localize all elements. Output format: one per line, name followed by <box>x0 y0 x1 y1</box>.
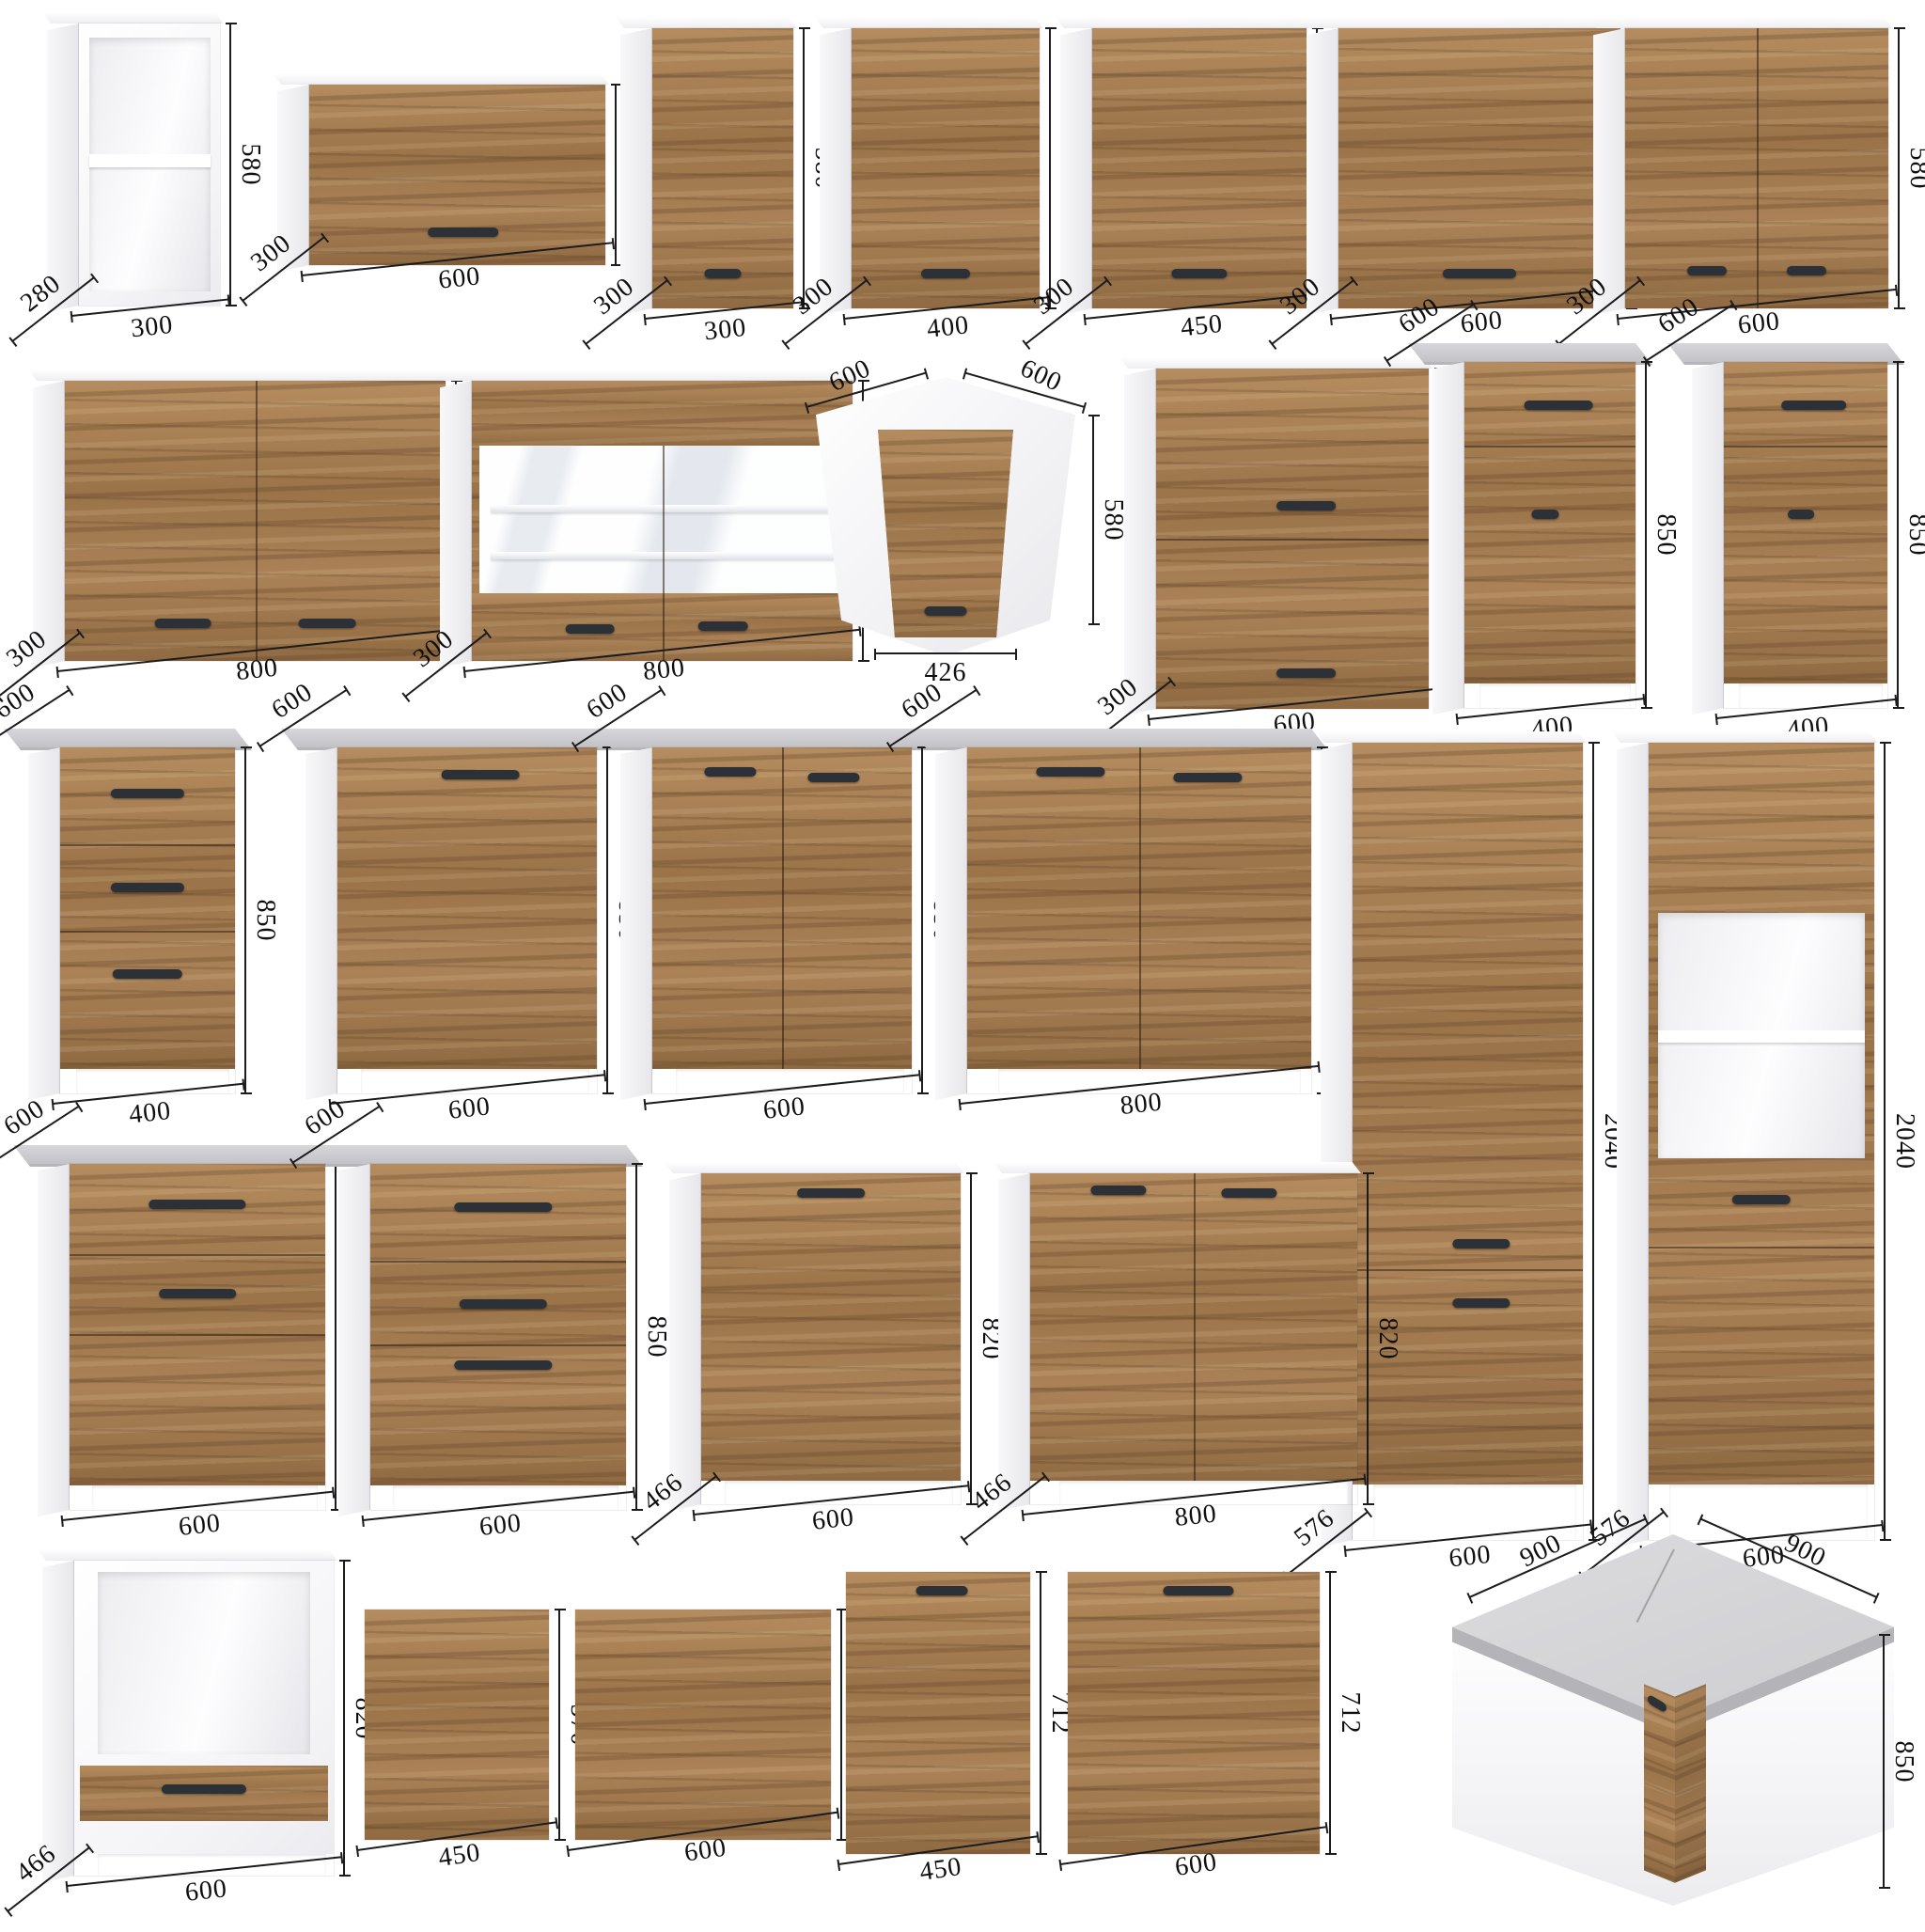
height-dimension-line <box>840 1610 842 1840</box>
cabinet-front <box>70 1164 325 1510</box>
front-skin <box>337 747 597 1069</box>
cabinet-side-panel <box>305 747 337 1100</box>
door-gap-horizontal <box>1464 446 1635 448</box>
front-width-dimension-line <box>875 652 1016 654</box>
door-handle <box>1525 401 1593 410</box>
door-gap-horizontal <box>1724 446 1887 448</box>
cabinet-front <box>575 1610 831 1840</box>
height-dimension-line <box>921 747 923 1093</box>
cabinet-item-r3c3: 850600600 <box>620 747 955 1150</box>
height-dimension-line <box>970 1173 972 1504</box>
cabinet-front <box>472 381 853 661</box>
door-handle <box>1164 1586 1234 1595</box>
cabinet-item-r5c1: 820600466 <box>42 1561 377 1932</box>
door-handle <box>925 606 967 616</box>
cabinet-front <box>60 747 235 1093</box>
door-handle <box>1453 1298 1510 1308</box>
front-skin <box>65 381 446 661</box>
cabinet-side-panel <box>38 1164 70 1516</box>
top-left-width-label: 900 <box>1515 1529 1566 1574</box>
door-handle <box>455 1360 552 1370</box>
door-handle <box>1171 269 1227 278</box>
height-dimension-line <box>343 1561 345 1876</box>
height-dimension-line <box>606 747 608 1093</box>
width-label: 450 <box>1180 309 1225 344</box>
height-dimension-line <box>803 28 805 308</box>
front-skin <box>1092 28 1307 308</box>
door-handle <box>1648 1693 1667 1712</box>
height-label: 580 <box>1903 148 1925 190</box>
door-handle <box>299 619 356 628</box>
width-label: 400 <box>128 1096 173 1131</box>
cabinet-side-panel <box>338 1164 370 1516</box>
front-skin <box>1724 362 1887 683</box>
depth-label: 600 <box>897 677 948 725</box>
cabinet-item-r2c6: 850400600 <box>1692 362 1925 764</box>
height-dimension-line <box>1592 743 1594 1540</box>
height-dimension-line <box>1645 362 1647 708</box>
door-handle <box>149 1200 245 1209</box>
cabinet-top-edge <box>1612 731 1878 743</box>
inner-corner-door-left <box>1644 1684 1675 1882</box>
width-label: 600 <box>446 1092 492 1126</box>
door-handle <box>698 621 748 631</box>
width-label: 600 <box>477 1508 523 1543</box>
door-gap-horizontal <box>1649 1247 1874 1249</box>
cabinet-item-r2c5: 850400600 <box>1432 362 1679 764</box>
door-handle <box>113 969 182 979</box>
height-label: 712 <box>1335 1692 1365 1735</box>
top-right-width-label: 900 <box>1779 1529 1830 1574</box>
front-skin <box>1068 1572 1320 1854</box>
width-label: 300 <box>130 310 175 345</box>
door-handle <box>455 1202 552 1212</box>
door-gap-vertical <box>1194 1173 1196 1481</box>
cabinet-top-edge <box>1056 17 1310 28</box>
width-label: 600 <box>761 1092 806 1126</box>
height-dimension-line <box>635 1164 637 1510</box>
cabinet-side-panel <box>620 747 652 1100</box>
front-skin <box>652 747 912 1069</box>
width-label: 600 <box>1173 1847 1219 1883</box>
cabinet-item-r5c4: 712450 <box>846 1572 1105 1910</box>
cabinet-top-edge <box>1589 17 1892 28</box>
width-label: 600 <box>810 1502 855 1537</box>
cabinet-front <box>1724 362 1887 708</box>
height-dimension-line <box>229 24 231 306</box>
cabinet-item-r5c6: 900900850 <box>1452 1534 1894 1906</box>
door-gap-horizontal <box>60 931 235 933</box>
height-label: 2040 <box>1889 1113 1919 1170</box>
cabinet-front <box>65 381 446 661</box>
height-dimension-line <box>1883 1635 1885 1888</box>
cabinet-front <box>74 1561 334 1876</box>
width-label: 800 <box>1173 1499 1218 1533</box>
oven-cavity <box>98 1572 310 1753</box>
door-handle <box>705 269 742 278</box>
door-handle <box>1276 668 1337 678</box>
cabinet-item-r3c4: 850800600 <box>935 747 1354 1150</box>
width-dimension: 300 <box>71 298 232 353</box>
cabinet-item-r1c7: 580600300 <box>1593 28 1925 365</box>
front-skin <box>1338 28 1620 308</box>
door-handle <box>797 1188 865 1198</box>
cabinet-side-panel <box>1432 362 1464 715</box>
corner-door <box>875 430 1016 638</box>
cabinet-top-edge <box>1302 17 1624 28</box>
door-gap-horizontal <box>70 1334 325 1336</box>
door-handle <box>921 269 970 278</box>
height-label: 850 <box>641 1316 671 1359</box>
cabinet-front <box>337 747 597 1093</box>
door-gap-vertical <box>1757 28 1759 308</box>
door-handle <box>1174 773 1243 782</box>
height-label: 850 <box>1651 514 1681 557</box>
depth-label: 280 <box>15 269 67 319</box>
drawer-handle <box>162 1784 246 1794</box>
front-skin <box>309 85 605 265</box>
height-dimension-line <box>558 1610 560 1840</box>
height-dimension-line <box>1040 1572 1041 1854</box>
door-handle <box>1531 510 1558 519</box>
door-handle <box>154 619 211 628</box>
front-skin <box>1625 28 1888 308</box>
door-handle <box>565 624 615 634</box>
door-gap-vertical <box>663 446 665 661</box>
height-label: 820 <box>1372 1318 1402 1360</box>
door-gap-horizontal <box>370 1261 626 1263</box>
door-gap-horizontal <box>60 844 235 846</box>
width-label: 450 <box>918 1852 964 1888</box>
height-dimension-line <box>1884 743 1886 1540</box>
door-handle <box>808 773 860 782</box>
front-skin <box>967 747 1311 1069</box>
width-label: 800 <box>235 653 280 688</box>
cabinet-side-panel <box>28 747 60 1100</box>
width-label: 300 <box>703 313 748 348</box>
cabinet-top-edge <box>815 17 1043 28</box>
height-label: 850 <box>250 900 280 942</box>
niche-shelf <box>1658 1030 1866 1043</box>
cabinet-top-edge <box>665 1162 964 1173</box>
cabinet-front <box>652 747 912 1093</box>
front-skin <box>1464 362 1635 683</box>
cabinet-front <box>652 28 793 308</box>
door-handle <box>1687 266 1727 275</box>
height-label: 580 <box>235 144 265 186</box>
door-handle <box>111 883 184 892</box>
height-dimension-line <box>335 1164 336 1510</box>
door-gap-horizontal <box>70 1254 325 1256</box>
height-label: 850 <box>1888 1740 1918 1783</box>
width-label: 800 <box>1119 1088 1164 1123</box>
cabinet-front <box>1092 28 1307 308</box>
cabinet-front <box>79 24 220 306</box>
cabinet-front <box>365 1610 549 1840</box>
cabinet-item-r2c3: 600600580426 <box>805 374 1087 664</box>
front-skin <box>60 747 235 1069</box>
width-label: 600 <box>177 1508 222 1543</box>
height-dimension-line <box>1898 28 1900 308</box>
door-handle <box>704 767 756 777</box>
glass-door-top-rail <box>472 381 853 446</box>
inner-corner-door-right <box>1675 1684 1706 1882</box>
door-gap-vertical <box>256 381 258 661</box>
front-skin <box>365 1610 549 1840</box>
front-skin <box>1030 1173 1357 1481</box>
door-handle <box>460 1299 546 1309</box>
width-label: 400 <box>926 310 971 345</box>
door-gap-vertical <box>782 747 784 1069</box>
cabinet-top-edge <box>38 1549 337 1561</box>
door-handle <box>1781 401 1847 410</box>
door-handle <box>1453 1239 1510 1249</box>
cabinet-front <box>1464 362 1635 708</box>
front-skin <box>652 28 793 308</box>
door-gap-vertical <box>1139 747 1141 1069</box>
door-handle <box>1788 510 1814 519</box>
bottom-drawer-front <box>80 1766 329 1821</box>
cabinet-side-panel <box>935 747 967 1100</box>
cabinet-top-edge <box>273 73 609 85</box>
cabinet-front <box>852 28 1040 308</box>
height-dimension-line <box>1367 1173 1369 1504</box>
height-label: 850 <box>1902 514 1925 557</box>
cabinet-top-edge <box>435 369 856 381</box>
front-skin <box>74 1561 334 1854</box>
height-dimension-line <box>615 85 617 265</box>
width-label: 600 <box>183 1874 228 1908</box>
height-dimension-line <box>244 747 246 1093</box>
height-dimension-line <box>1329 1572 1331 1854</box>
front-skin <box>852 28 1040 308</box>
front-skin <box>370 1164 626 1485</box>
cabinet-item-r3c6: 2040600576 <box>1617 743 1917 1596</box>
door-handle <box>441 770 519 779</box>
front-skin <box>701 1173 961 1481</box>
front-skin <box>846 1572 1030 1854</box>
door-gap-horizontal <box>1156 539 1429 541</box>
cabinet-item-r1c1: 580300280 <box>47 24 263 362</box>
cabinet-front <box>1030 1173 1357 1504</box>
cabinet-front <box>370 1164 626 1510</box>
cabinet-front <box>846 1572 1030 1854</box>
door-handle <box>1732 1195 1791 1204</box>
open-carcass-cavity <box>89 38 211 291</box>
front-skin <box>472 381 853 661</box>
front-skin <box>79 24 220 306</box>
door-handle <box>916 1586 967 1595</box>
door-handle <box>1222 1188 1277 1198</box>
cabinet-front <box>1338 28 1620 308</box>
cabinet-top-edge <box>28 369 449 381</box>
door-handle <box>1036 767 1104 777</box>
cabinet-front <box>1068 1572 1320 1854</box>
width-label: 450 <box>437 1838 483 1874</box>
front-skin <box>70 1164 325 1485</box>
cabinet-item-r4c1: 850600600 <box>38 1164 368 1566</box>
cabinet-front <box>1625 28 1888 308</box>
width-label: 600 <box>682 1833 728 1869</box>
cabinet-item-r2c4: 720600300 <box>1124 369 1472 765</box>
cabinet-side-panel <box>1692 362 1724 715</box>
front-skin <box>575 1610 831 1840</box>
depth-label: 466 <box>10 1839 62 1889</box>
oven-niche <box>1658 913 1866 1157</box>
door-handle <box>1090 1186 1146 1195</box>
cabinet-item-r1c2: 360600300 <box>277 85 649 322</box>
cabinet-front <box>1649 743 1874 1540</box>
door-handle <box>111 789 184 798</box>
depth-label: 600 <box>0 1093 51 1141</box>
door-handle <box>159 1289 236 1298</box>
cabinet-top-edge <box>616 17 797 28</box>
cabinet-front <box>701 1173 961 1504</box>
front-skin <box>1649 743 1874 1484</box>
cabinet-item-r5c5: 712600 <box>1068 1572 1395 1910</box>
cabinet-front <box>967 747 1311 1093</box>
cabinet-side-panel <box>1617 743 1649 1547</box>
cabinet-front <box>1156 369 1429 709</box>
front-skin <box>1156 369 1429 709</box>
door-gap-horizontal <box>370 1344 626 1346</box>
cabinet-front <box>309 85 605 265</box>
width-label: 600 <box>437 261 482 296</box>
cabinet-top-edge <box>1316 731 1587 743</box>
middle-shelf <box>89 154 211 167</box>
cabinet-top-edge <box>994 1162 1361 1173</box>
cabinet-top-edge <box>42 12 224 24</box>
door-handle <box>428 228 499 237</box>
door-handle <box>1787 266 1826 275</box>
cabinet-catalog-canvas: 5803002803606003005803003005804003005804… <box>0 0 1925 1925</box>
height-dimension-line <box>1049 28 1051 308</box>
height-dimension-line <box>1092 416 1094 624</box>
depth-label: 300 <box>1092 672 1144 722</box>
cabinet-item-r4c4: 820800466 <box>998 1173 1401 1561</box>
width-label: 600 <box>1736 306 1781 341</box>
door-handle <box>1276 501 1337 510</box>
height-dimension-line <box>1897 362 1899 708</box>
